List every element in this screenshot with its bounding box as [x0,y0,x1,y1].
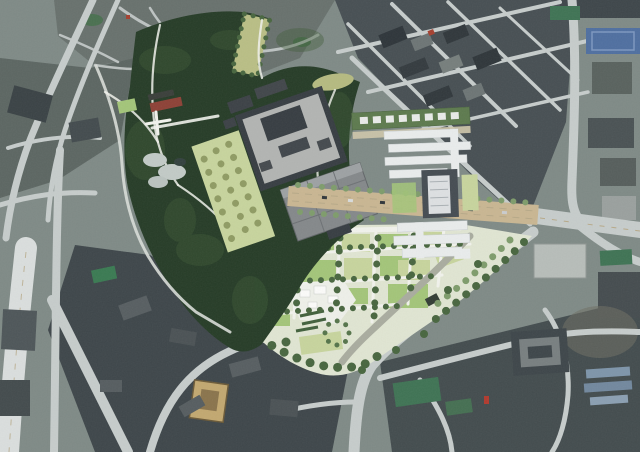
aerial-map [0,0,640,452]
aerial-master-plan-image [0,0,640,452]
film-grain-overlay [0,0,640,452]
